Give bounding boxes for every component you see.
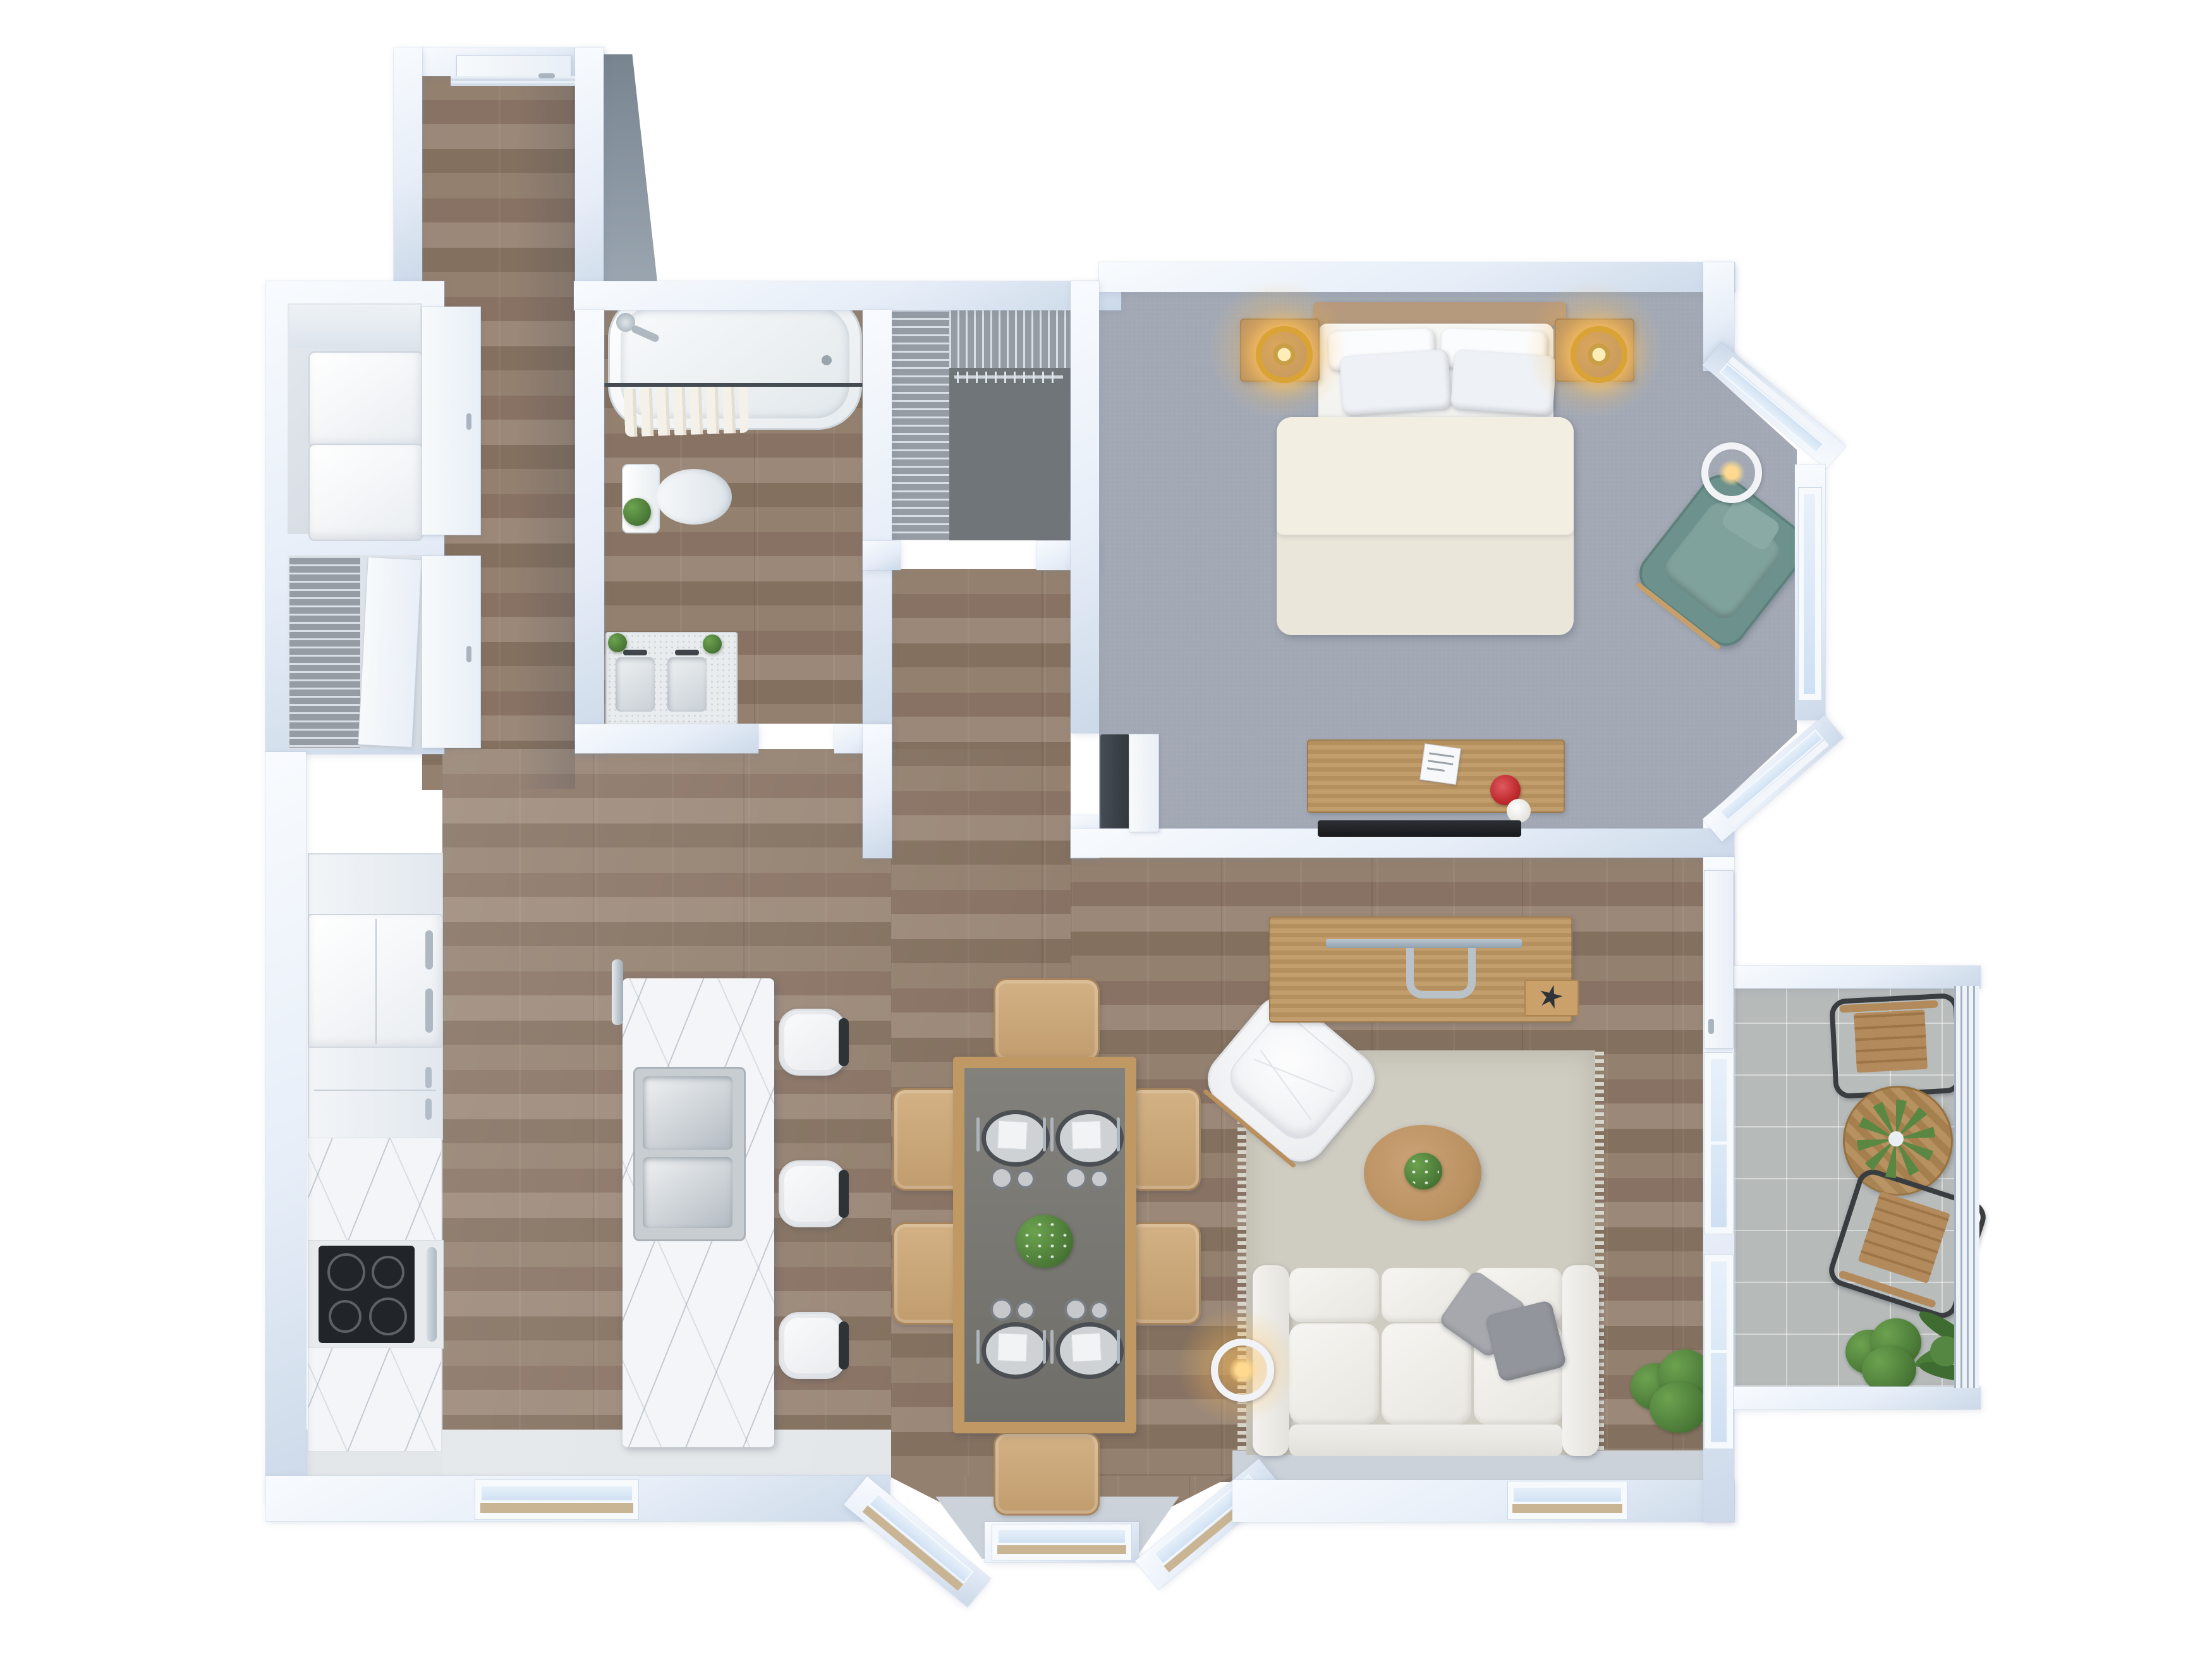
burner — [327, 1253, 365, 1291]
island-sink-unit — [633, 1067, 746, 1241]
paper-line — [1429, 752, 1454, 758]
wall — [574, 281, 1121, 310]
drawer-handle — [425, 1067, 432, 1088]
faucet-right — [675, 650, 699, 655]
monitor — [1326, 939, 1522, 948]
entry-door-handle — [538, 73, 555, 78]
drawer-seam — [314, 1090, 436, 1091]
balcony-wall-bottom — [1733, 1387, 1981, 1409]
sofa-back-cushion — [1289, 1268, 1379, 1322]
desk-paper — [1419, 743, 1461, 785]
cutlery — [1117, 1330, 1120, 1364]
storage-inner-door — [358, 557, 421, 747]
coffee-table-plant — [1404, 1153, 1442, 1189]
cutlery — [976, 1330, 980, 1364]
monitor-stand — [1406, 948, 1476, 999]
kitchen-drawers — [308, 1047, 443, 1140]
wall — [265, 752, 306, 1503]
balcony-door-handle — [1708, 1019, 1714, 1034]
balcony-railing — [1954, 986, 1979, 1388]
desk-bowl-white — [1507, 799, 1531, 823]
bedroom-cabinet — [1100, 734, 1129, 830]
sofa-front-edge — [1289, 1425, 1562, 1456]
window-glass — [1512, 1486, 1622, 1503]
chair-slats — [1858, 1191, 1950, 1284]
closet-door-bottom — [422, 556, 480, 748]
kitchen-counter-2 — [308, 1347, 442, 1452]
place-setting — [1050, 1297, 1120, 1392]
wall — [1232, 1480, 1734, 1522]
place-setting — [1050, 1100, 1120, 1194]
window-sill — [480, 1503, 633, 1513]
glass — [1016, 1169, 1035, 1189]
window-glass — [1802, 493, 1816, 695]
window-mullion — [1707, 1141, 1730, 1145]
toilet-bowl — [656, 469, 732, 525]
duvet — [1277, 417, 1574, 635]
wall — [863, 310, 892, 753]
bay-window-center — [992, 1524, 1131, 1560]
kitchen-counter-1 — [308, 1138, 442, 1241]
entry-door-trim — [451, 76, 575, 86]
closet-door-handle — [466, 413, 471, 430]
dining-chair-top — [994, 978, 1100, 1062]
paper-line — [1427, 767, 1445, 772]
wall-tv — [1318, 820, 1521, 837]
bar-stool-2 — [779, 1160, 846, 1227]
closet-door-top — [422, 307, 480, 535]
glass — [990, 1298, 1013, 1321]
napkin — [997, 1333, 1028, 1362]
plant-foliage — [1650, 1382, 1708, 1433]
window-balcony-1 — [1705, 1053, 1733, 1234]
paper-line — [1428, 760, 1453, 765]
table-lamp-left — [1256, 326, 1313, 383]
exterior-wall-shadow — [602, 54, 657, 282]
window-sill — [863, 1505, 963, 1591]
bed-pillow-front-left — [1339, 349, 1452, 416]
wall — [863, 724, 892, 858]
closet-door-handle — [466, 646, 471, 662]
napkin — [1071, 1333, 1102, 1362]
burner — [369, 1297, 407, 1335]
sofa-arm-right — [1562, 1265, 1599, 1456]
oven-handle — [427, 1247, 437, 1342]
drawer-handle — [425, 1098, 432, 1120]
toilet-plant — [623, 498, 651, 526]
wall — [575, 47, 604, 312]
sofa-seat-cushion — [1289, 1323, 1379, 1425]
cutlery — [1043, 1117, 1046, 1152]
sink-basin-bottom — [643, 1157, 732, 1228]
outdoor-chair-1 — [1829, 993, 1963, 1099]
burner — [372, 1256, 404, 1289]
sink-right — [667, 657, 707, 712]
wire-shelf-storage — [289, 556, 360, 748]
cutlery — [1050, 1330, 1054, 1364]
napkin — [1071, 1121, 1102, 1150]
sofa-seat-cushion — [1382, 1323, 1471, 1425]
faucet-left — [623, 650, 647, 655]
table-lamp-right — [1571, 326, 1627, 383]
bedroom-door — [1129, 734, 1158, 832]
window-south-left — [475, 1480, 638, 1519]
cutlery — [1050, 1117, 1054, 1152]
cutlery — [1043, 1330, 1046, 1364]
glass — [1064, 1167, 1087, 1189]
outdoor-table-plant — [1857, 1100, 1935, 1178]
floor-plan-canvas — [0, 0, 2212, 1659]
napkin — [997, 1121, 1028, 1150]
glass — [1064, 1298, 1087, 1321]
headboard — [1313, 302, 1566, 326]
hanging-towels — [624, 385, 750, 437]
plant-pot — [1888, 1131, 1904, 1146]
dryer — [308, 444, 423, 541]
closet-shelving-top — [949, 310, 1071, 368]
vanity-plant-2 — [703, 635, 722, 653]
tub-drain — [822, 355, 832, 365]
dining-chair-bottom — [994, 1432, 1100, 1516]
bar-stool-3 — [779, 1312, 846, 1379]
living-floor-lamp — [1211, 1339, 1274, 1402]
window-balcony-2 — [1705, 1255, 1733, 1449]
kitchen-cabinet-top — [308, 853, 443, 916]
wall — [863, 541, 901, 570]
window-glass — [997, 1529, 1126, 1544]
bed-pillow-front-right — [1450, 349, 1557, 415]
wall — [394, 47, 422, 283]
bedroom-bay-window-right — [1799, 488, 1821, 700]
sink-basin-top — [643, 1076, 732, 1150]
table-centerpiece — [1016, 1215, 1073, 1268]
vanity-plant-1 — [608, 633, 627, 652]
window-mullion — [1707, 1350, 1730, 1353]
chair-slats — [1854, 1010, 1928, 1073]
shower-rail — [604, 383, 863, 387]
wall — [575, 310, 604, 753]
place-setting — [976, 1100, 1046, 1194]
cutlery — [1117, 1117, 1120, 1152]
hangers — [957, 372, 1058, 383]
fridge-door-seam — [375, 919, 377, 1044]
fridge — [308, 914, 443, 1049]
floor-plant — [1631, 1349, 1713, 1433]
island-faucet — [612, 959, 623, 1025]
fridge-handle — [425, 930, 433, 969]
sink-left — [616, 657, 655, 712]
wall — [1099, 262, 1735, 292]
glass — [1090, 1169, 1109, 1189]
wall — [1071, 281, 1099, 733]
dining-chair-right-2 — [1127, 1222, 1201, 1325]
wall — [575, 724, 758, 753]
bar-stool-1 — [779, 1009, 846, 1076]
window-sill — [1512, 1504, 1622, 1513]
duvet-fold — [1277, 417, 1574, 535]
glass — [1090, 1301, 1109, 1320]
window-south-right — [1508, 1481, 1627, 1519]
balcony-wall-top — [1733, 966, 1981, 988]
dining-chair-right-1 — [1127, 1088, 1201, 1191]
bedroom-floor-lamp — [1701, 442, 1762, 503]
stove — [308, 1240, 444, 1349]
closet-shelving-left — [891, 310, 949, 540]
cutlery — [976, 1117, 980, 1152]
washer — [308, 351, 423, 447]
window-glass — [480, 1485, 633, 1502]
glass — [1016, 1301, 1035, 1320]
window-sill — [997, 1545, 1126, 1554]
glass — [990, 1167, 1013, 1189]
place-setting — [976, 1297, 1046, 1392]
cooktop — [319, 1246, 415, 1343]
laundry-shelf — [289, 305, 420, 348]
fridge-handle — [425, 988, 433, 1033]
burner — [329, 1300, 362, 1333]
